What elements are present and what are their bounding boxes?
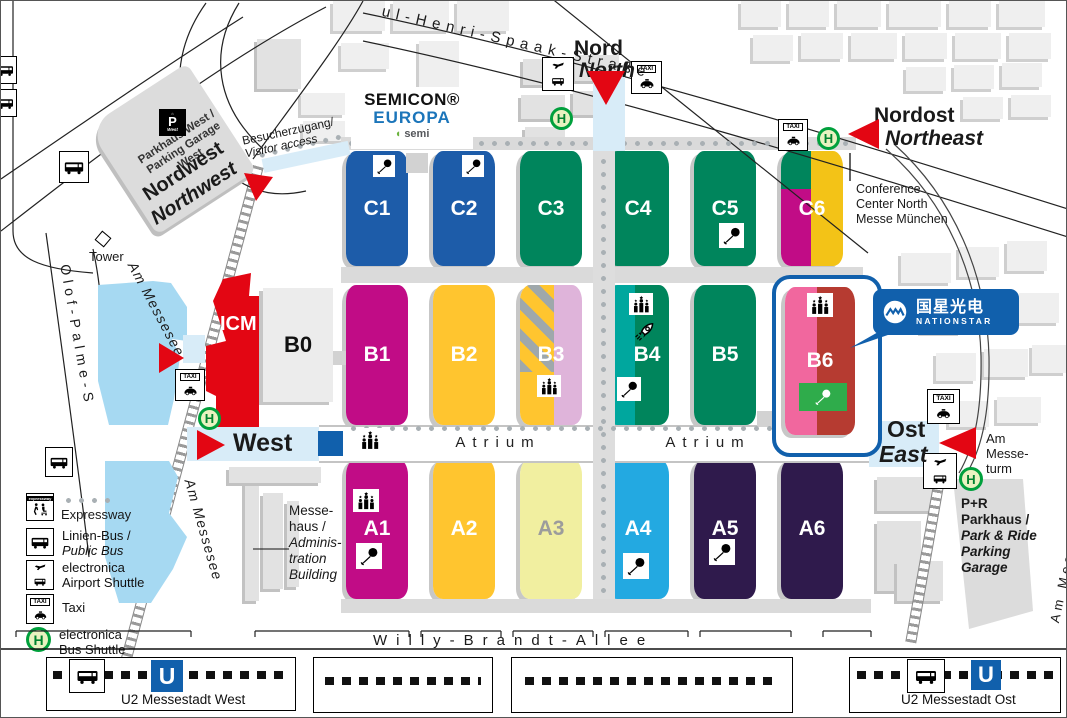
mic-icon xyxy=(719,223,744,248)
booth-icon xyxy=(537,375,561,397)
city-block xyxy=(301,93,345,115)
u2-segment-box xyxy=(511,657,793,713)
public-bus-icon xyxy=(45,447,73,477)
ubahn-icon: U xyxy=(971,660,1001,690)
taxi-icon: TAXI xyxy=(927,389,960,424)
city-block xyxy=(999,1,1045,27)
hall-A6: A6 xyxy=(781,459,843,599)
city-block xyxy=(341,43,389,69)
semi-logo: ◖ semi xyxy=(351,127,473,142)
mic-icon xyxy=(617,377,641,401)
public-bus-icon xyxy=(59,151,89,183)
city-block xyxy=(1032,345,1066,373)
public-bus-icon xyxy=(907,659,945,693)
entrance-northeast-en: Northeast xyxy=(885,127,983,151)
mic-icon xyxy=(356,543,382,569)
entrance-north-band xyxy=(593,71,625,151)
hall-A2: A2 xyxy=(433,459,495,599)
hall-B3: B3 xyxy=(520,285,582,425)
city-block xyxy=(419,41,459,89)
bus-shuttle-stop-icon: H xyxy=(198,407,221,430)
u2-line xyxy=(857,671,1053,679)
entrance-east-de: Ost xyxy=(887,416,925,443)
semicon-europa-logo: SEMICON® EUROPA ◖ semi xyxy=(351,87,473,149)
mic-icon xyxy=(373,155,395,177)
entrance-west-label: West xyxy=(233,429,292,458)
airport-shuttle-icon xyxy=(26,560,54,590)
bus-shuttle-stop-icon: H xyxy=(959,467,983,491)
station-east-label: U2 Messestadt Ost xyxy=(901,692,1016,707)
tower-label: Tower xyxy=(89,249,124,264)
street-olof-palme: Olof-Palme-S xyxy=(57,263,98,408)
taxi-icon: TAXI xyxy=(175,369,205,401)
mic-icon xyxy=(623,553,649,579)
bus-shuttle-stop-icon: H xyxy=(817,127,840,150)
legend-taxi: TAXI Taxi xyxy=(26,594,85,624)
booth-icon xyxy=(629,293,653,315)
street-willy-brandt-allee: Willy-Brandt-Allee xyxy=(373,632,654,649)
city-block xyxy=(1002,63,1042,87)
hall-A1: A1 xyxy=(346,459,408,599)
nationstar-en: NATIONSTAR xyxy=(916,316,992,326)
city-block xyxy=(851,33,897,59)
city-block xyxy=(1011,95,1051,117)
public-bus-icon xyxy=(69,659,105,693)
legend-expressway-label: Expressway xyxy=(61,507,131,522)
messehaus-label: Messe-haus / Adminis-trationBuilding xyxy=(289,503,342,583)
atrium-label-right: Atrium xyxy=(623,434,793,451)
messehaus-building xyxy=(245,475,259,601)
expressway-icon: expressway xyxy=(26,493,54,521)
city-block xyxy=(1019,293,1059,323)
city-block xyxy=(959,247,999,277)
airport-shuttle-icon xyxy=(923,453,957,489)
city-block xyxy=(741,1,781,27)
hall-B1: B1 xyxy=(346,285,408,425)
city-block xyxy=(906,67,946,91)
city-block xyxy=(1007,241,1047,271)
bus-shuttle-stop-icon: H xyxy=(550,107,573,130)
conference-center-label: ConferenceCenter NorthMesse München xyxy=(856,182,948,227)
mic-icon xyxy=(709,539,735,565)
city-block xyxy=(997,397,1041,423)
hall-A5: A5 xyxy=(694,459,756,599)
hall-B5: B5 xyxy=(694,285,756,425)
hall-B0: B0 xyxy=(263,288,333,402)
city-block xyxy=(901,253,951,283)
city-block xyxy=(889,1,941,27)
legend-public-bus: Linien-Bus /Public Bus xyxy=(26,528,131,558)
booth-icon xyxy=(357,428,383,452)
city-block xyxy=(1009,33,1051,59)
tower-marker xyxy=(95,231,112,248)
bus-shuttle-stop-icon: H xyxy=(26,627,51,652)
booth-icon xyxy=(807,293,833,317)
u2-segment-box xyxy=(313,657,493,713)
booth-icon xyxy=(353,489,379,512)
street-am-messesee-upper: Am Messesee xyxy=(125,259,189,359)
am-messeturm-label: AmMesse-turm xyxy=(986,431,1029,476)
stage-badge-B6 xyxy=(799,383,847,411)
messehaus-building xyxy=(229,467,321,483)
public-bus-icon xyxy=(0,89,17,117)
station-west-label: U2 Messestadt West xyxy=(121,692,245,707)
hall-A3: A3 xyxy=(520,459,582,599)
legend-bus-shuttle: H electronicaBus Shuttle xyxy=(26,627,126,657)
city-block xyxy=(333,1,385,31)
west-blue-marker xyxy=(318,431,343,456)
hall-C5: C5 xyxy=(694,151,756,266)
entrance-east-en: East xyxy=(879,441,928,468)
city-block xyxy=(837,1,881,27)
public-bus-icon xyxy=(0,56,17,84)
messe-muenchen-map: Parkhaus West /Parking GarageWest ⌂ P We… xyxy=(0,0,1067,718)
pr-garage-label: P+RParkhaus / Park & RideParkingGarage xyxy=(961,496,1037,576)
taxi-icon: TAXI xyxy=(778,119,808,151)
city-block xyxy=(949,1,991,27)
public-bus-icon xyxy=(26,528,54,556)
legend-airport-shuttle: electronicaAirport Shuttle xyxy=(26,560,144,590)
hall-C3: C3 xyxy=(520,151,582,266)
city-block xyxy=(257,39,301,89)
city-block xyxy=(905,33,947,59)
city-block xyxy=(955,33,1001,59)
parking-west-icon: ⌂ P West xyxy=(159,109,186,136)
entrance-northeast-de: Nordost xyxy=(874,104,955,128)
railway-west xyxy=(120,165,264,665)
spine-dots xyxy=(600,155,607,595)
connector xyxy=(406,153,428,173)
mic-icon xyxy=(462,155,484,177)
u2-line xyxy=(325,677,481,685)
city-block xyxy=(789,1,829,27)
city-block xyxy=(936,353,976,381)
nationstar-cn: 国星光电 xyxy=(916,299,992,316)
corridor-south xyxy=(341,599,871,613)
street-am-messefreigelaende: Am Messefreigelände xyxy=(1047,424,1067,624)
atrium-label-left: Atrium xyxy=(413,434,583,451)
icm-label: ICM xyxy=(220,313,257,336)
city-block xyxy=(801,33,843,59)
rocket-icon xyxy=(631,319,657,345)
nationstar-logo-icon xyxy=(881,298,909,326)
city-block xyxy=(753,35,793,61)
hall-B2: B2 xyxy=(433,285,495,425)
u2-line xyxy=(525,677,779,685)
nationstar-callout: 国星光电 NATIONSTAR xyxy=(873,289,1019,335)
taxi-icon: TAXI xyxy=(26,594,54,624)
messehaus-building xyxy=(263,493,283,589)
city-block xyxy=(984,349,1028,377)
ubahn-icon: U xyxy=(151,660,183,692)
hall-C4: C4 xyxy=(607,151,669,266)
city-block xyxy=(963,97,1003,119)
street-am-messesee-lower: Am Messesee xyxy=(182,477,226,583)
city-block xyxy=(954,65,994,89)
hall-C6: C6 xyxy=(781,151,843,266)
